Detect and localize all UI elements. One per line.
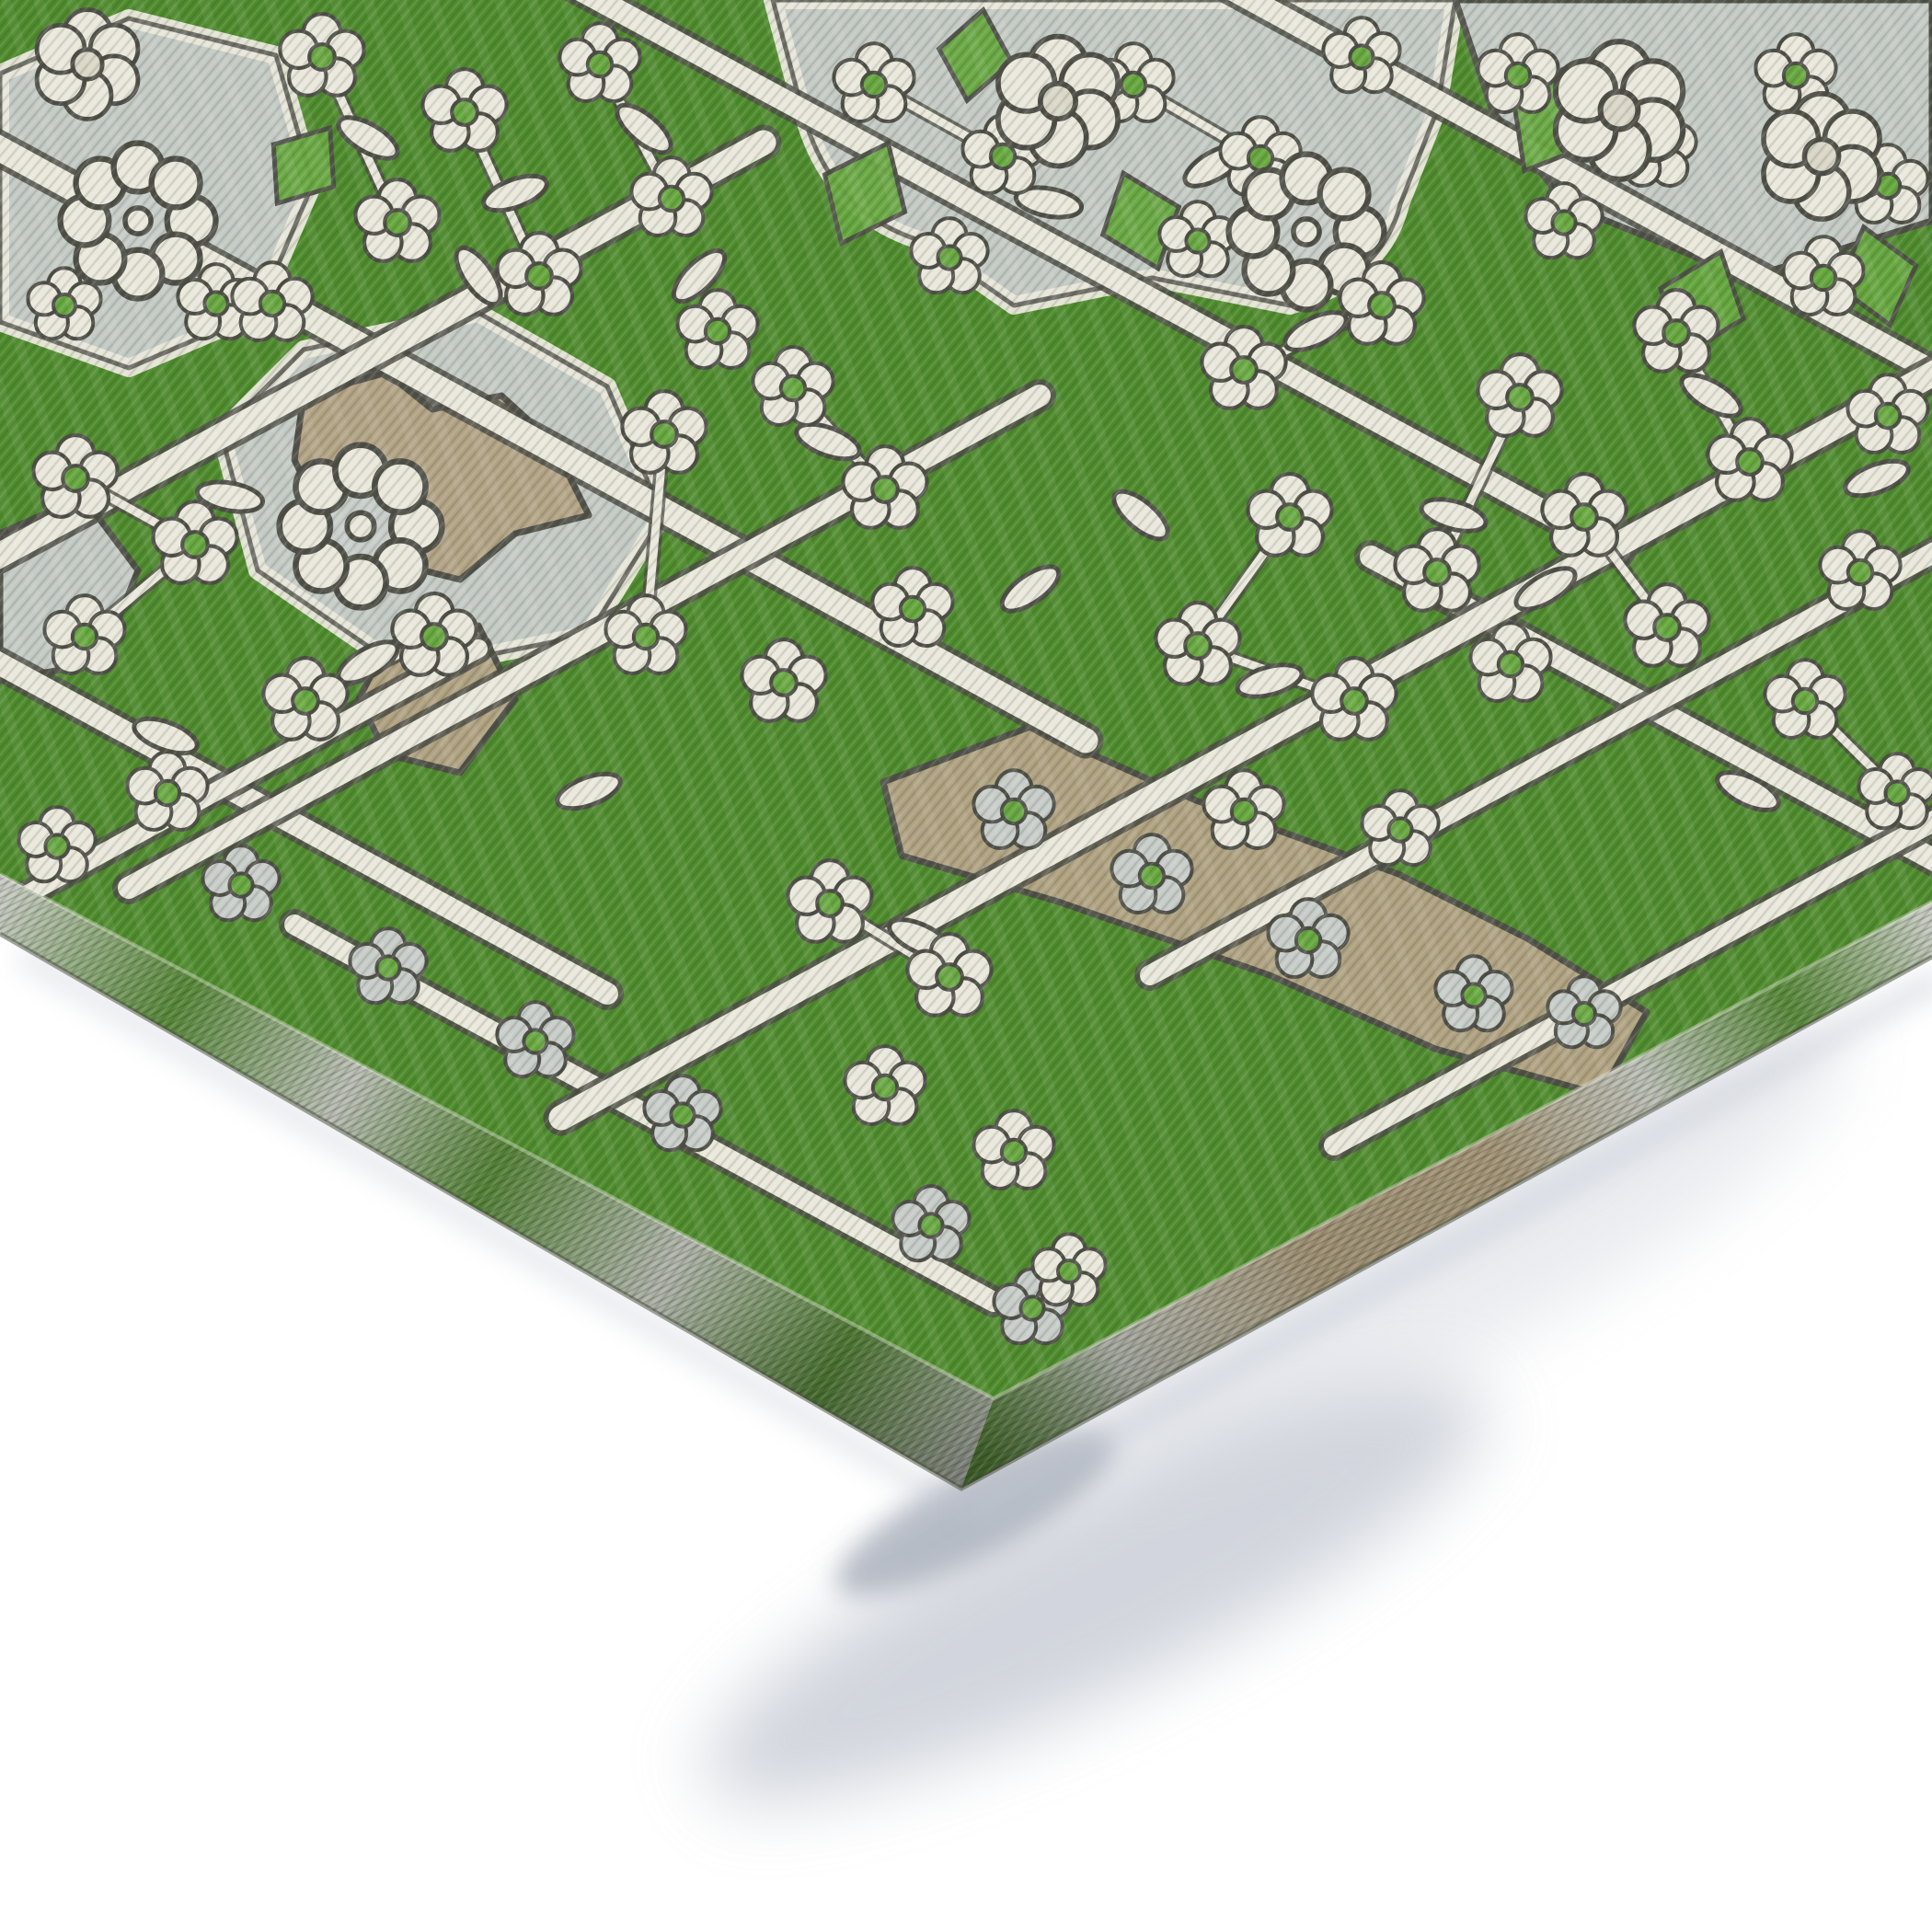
rug-product-photo: Close-up corner of a fern-green area rug… <box>0 0 1932 1932</box>
rug-photo-canvas: Close-up corner of a fern-green area rug… <box>0 0 1932 1932</box>
